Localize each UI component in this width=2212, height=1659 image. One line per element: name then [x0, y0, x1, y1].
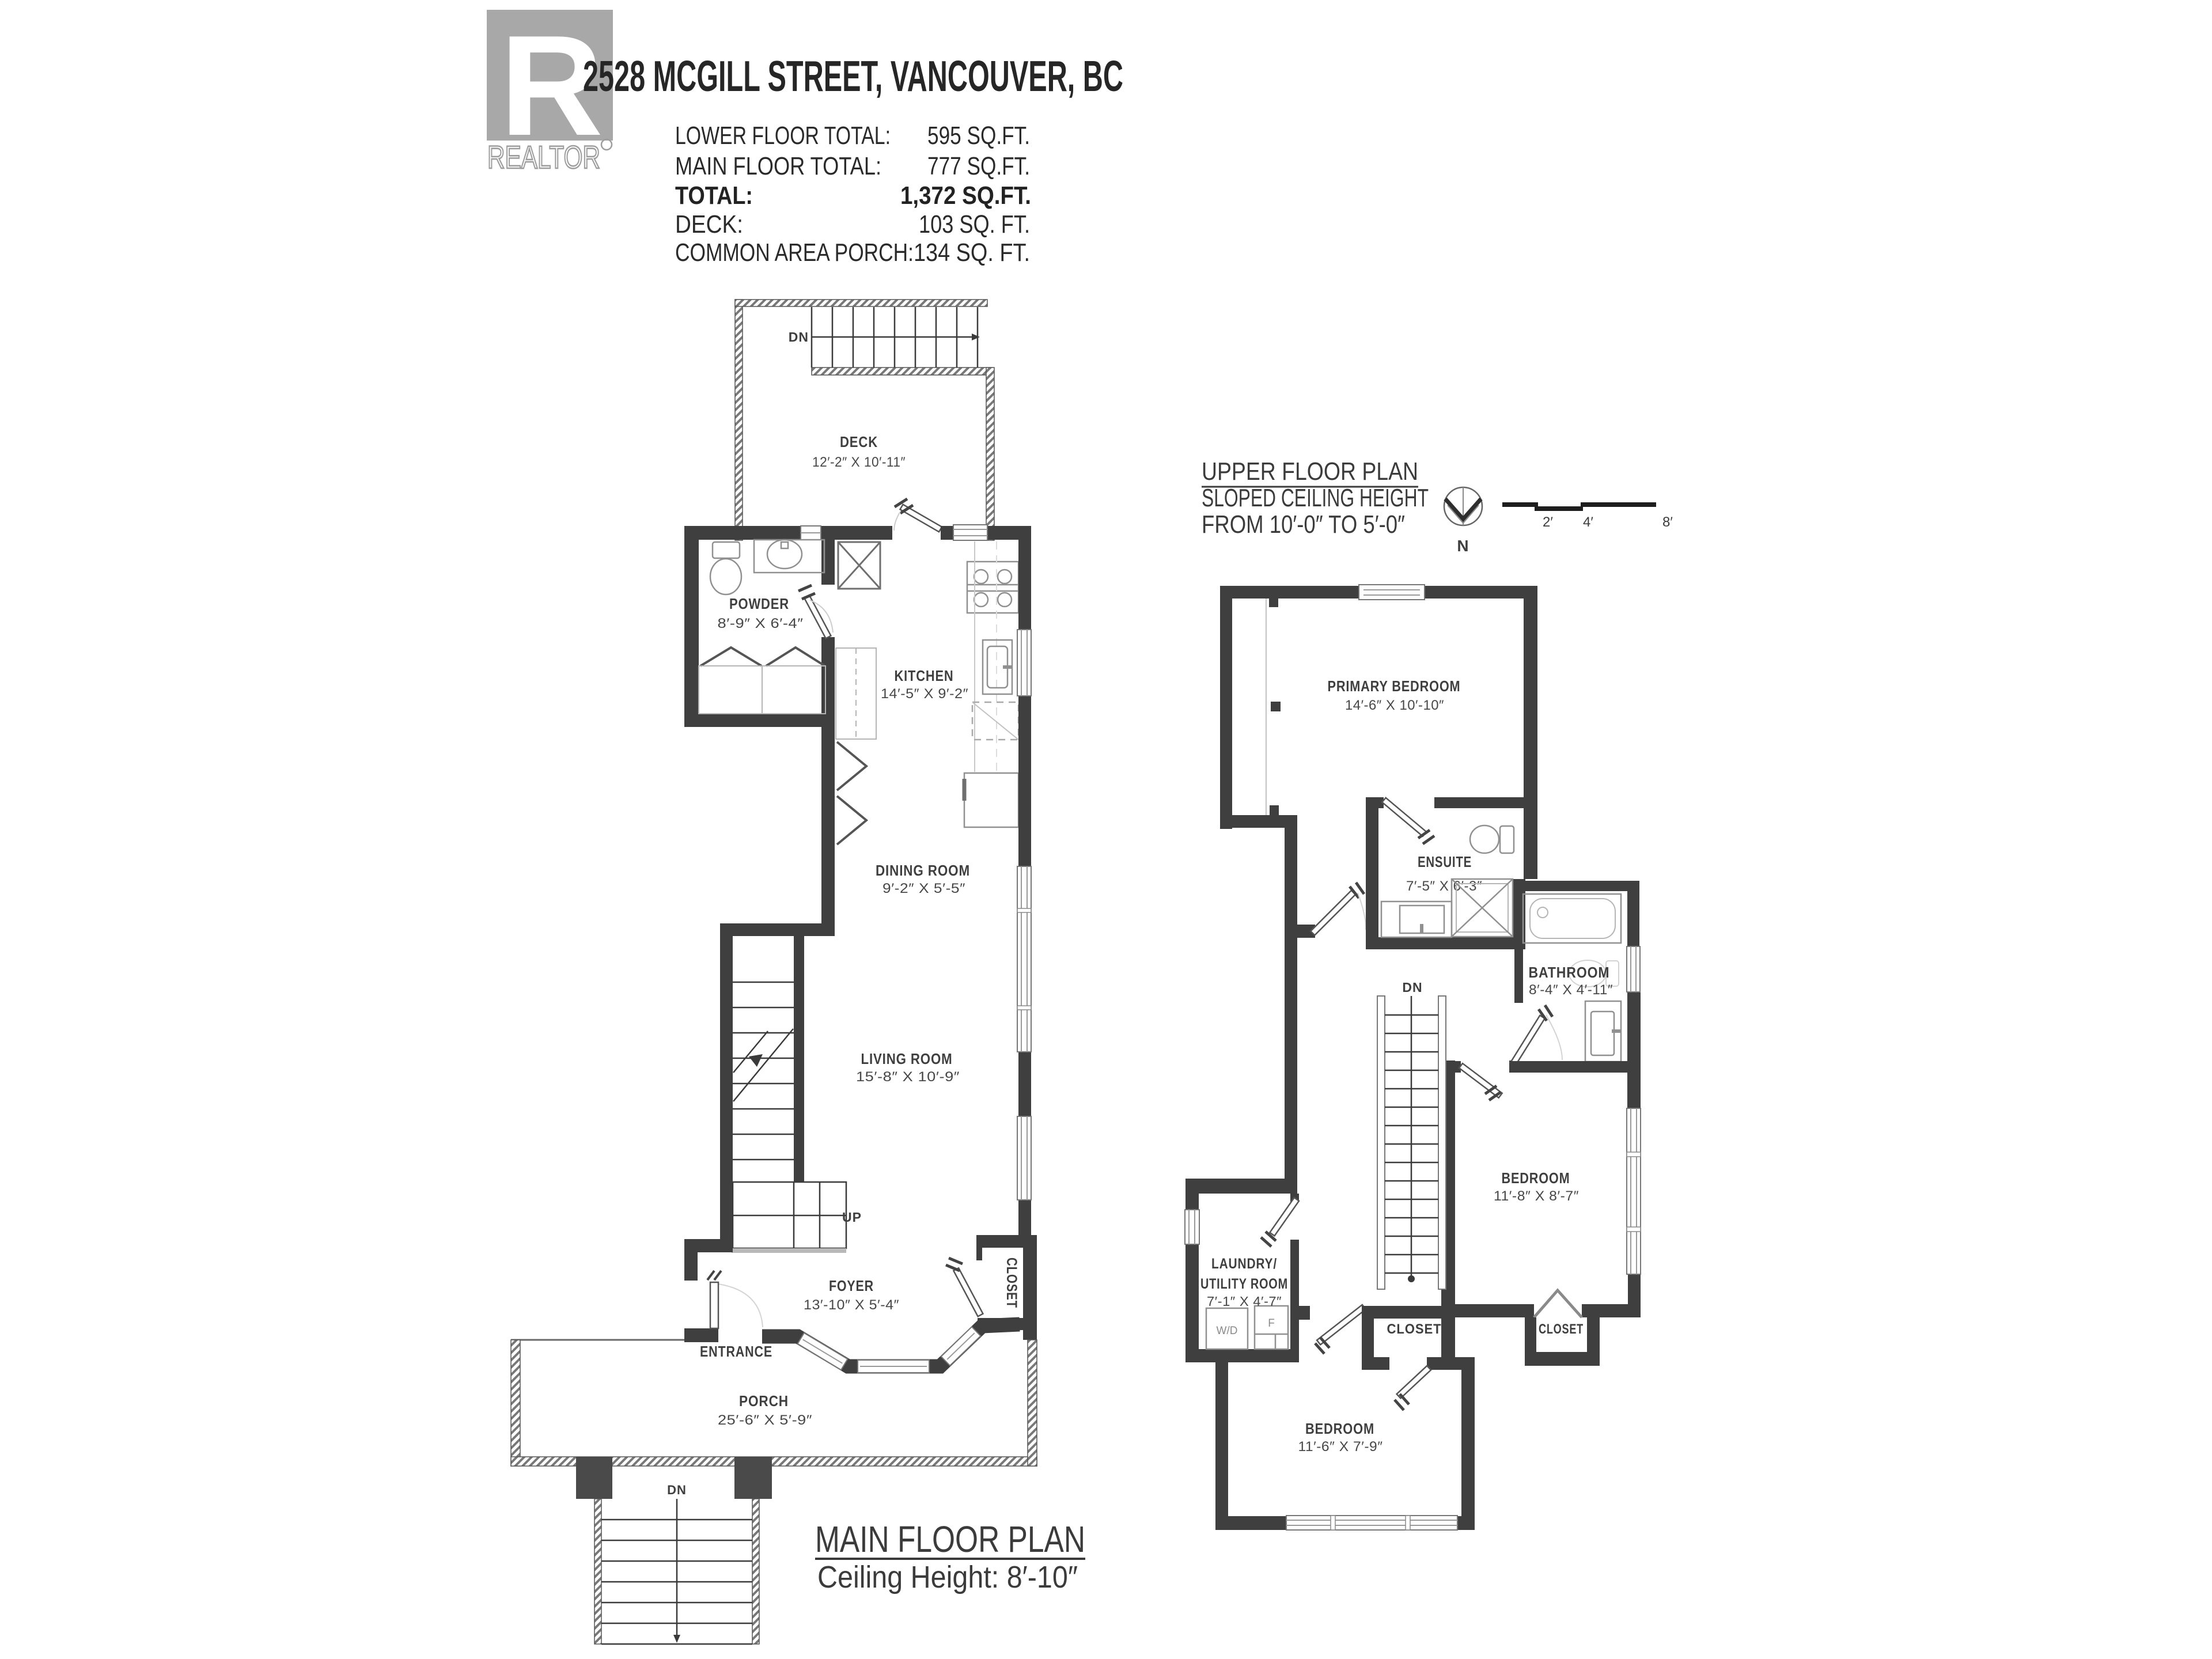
svg-text:11′-6″ X 7′-9″: 11′-6″ X 7′-9″	[1298, 1439, 1383, 1455]
svg-text:595 SQ.FT.: 595 SQ.FT.	[927, 122, 1030, 150]
svg-text:POWDER: POWDER	[729, 595, 789, 612]
svg-text:CLOSET: CLOSET	[1003, 1257, 1020, 1308]
svg-text:11′-8″ X 8′-7″: 11′-8″ X 8′-7″	[1494, 1188, 1579, 1204]
svg-text:2′: 2′	[1543, 514, 1553, 530]
svg-text:BEDROOM: BEDROOM	[1502, 1169, 1570, 1187]
svg-text:PRIMARY BEDROOM: PRIMARY BEDROOM	[1328, 677, 1461, 695]
svg-text:UPPER FLOOR PLAN: UPPER FLOOR PLAN	[1202, 457, 1418, 486]
svg-text:BATHROOM: BATHROOM	[1529, 964, 1610, 981]
svg-text:7′-5″ X 6′-3″: 7′-5″ X 6′-3″	[1406, 878, 1482, 894]
svg-text:CLOSET: CLOSET	[1387, 1321, 1442, 1337]
svg-text:FROM 10′-0″ TO 5′-0″: FROM 10′-0″ TO 5′-0″	[1202, 510, 1405, 539]
svg-text:DINING ROOM: DINING ROOM	[876, 862, 970, 879]
svg-text:8′-4″ X 4′-11″: 8′-4″ X 4′-11″	[1529, 982, 1613, 998]
svg-text:13′-10″ X 5′-4″: 13′-10″ X 5′-4″	[804, 1297, 899, 1313]
svg-text:15′-8″ X 10′-9″: 15′-8″ X 10′-9″	[856, 1069, 960, 1085]
svg-text:134 SQ. FT.: 134 SQ. FT.	[914, 238, 1030, 267]
svg-text:2528 MCGILL STREET, VANCOUVER,: 2528 MCGILL STREET, VANCOUVER, BC	[583, 52, 1123, 100]
svg-text:ENSUITE: ENSUITE	[1418, 853, 1472, 870]
svg-text:KITCHEN: KITCHEN	[895, 667, 954, 684]
svg-text:MAIN FLOOR PLAN: MAIN FLOOR PLAN	[815, 1518, 1085, 1560]
svg-text:12′-2″ X 10′-11″: 12′-2″ X 10′-11″	[812, 454, 906, 470]
svg-text:COMMON AREA PORCH:: COMMON AREA PORCH:	[675, 238, 914, 267]
svg-text:REALTOR: REALTOR	[487, 139, 600, 175]
svg-text:TOTAL:: TOTAL:	[675, 181, 753, 210]
svg-text:UTILITY ROOM: UTILITY ROOM	[1200, 1276, 1288, 1292]
svg-text:FOYER: FOYER	[829, 1277, 874, 1294]
svg-text:CLOSET: CLOSET	[1539, 1321, 1584, 1337]
svg-text:W/D: W/D	[1217, 1325, 1238, 1337]
svg-text:N: N	[1457, 537, 1469, 555]
svg-text:DN: DN	[1402, 980, 1422, 995]
svg-text:7′-1″ X 4′-7″: 7′-1″ X 4′-7″	[1207, 1294, 1282, 1309]
svg-text:103 SQ. FT.: 103 SQ. FT.	[919, 210, 1030, 238]
svg-text:ENTRANCE: ENTRANCE	[700, 1343, 772, 1360]
svg-text:DN: DN	[789, 329, 809, 344]
svg-text:14′-5″ X 9′-2″: 14′-5″ X 9′-2″	[881, 686, 968, 702]
svg-text:LOWER FLOOR TOTAL:: LOWER FLOOR TOTAL:	[675, 122, 891, 150]
svg-text:UP: UP	[842, 1210, 862, 1225]
svg-text:25′-6″ X 5′-9″: 25′-6″ X 5′-9″	[718, 1412, 812, 1428]
svg-text:4′: 4′	[1583, 514, 1593, 530]
svg-text:8′: 8′	[1662, 514, 1673, 530]
svg-text:777 SQ.FT.: 777 SQ.FT.	[927, 152, 1030, 180]
svg-text:F: F	[1268, 1317, 1275, 1330]
svg-text:LAUNDRY/: LAUNDRY/	[1211, 1256, 1277, 1272]
svg-text:1,372 SQ.FT.: 1,372 SQ.FT.	[900, 181, 1031, 210]
svg-text:LIVING ROOM: LIVING ROOM	[861, 1050, 953, 1067]
svg-text:DECK: DECK	[840, 433, 878, 450]
svg-text:BEDROOM: BEDROOM	[1305, 1420, 1374, 1437]
svg-text:9′-2″ X 5′-5″: 9′-2″ X 5′-5″	[882, 881, 965, 896]
svg-text:SLOPED CEILING HEIGHT: SLOPED CEILING HEIGHT	[1202, 484, 1429, 512]
svg-text:8′-9″ X 6′-4″: 8′-9″ X 6′-4″	[718, 616, 804, 631]
svg-text:DN: DN	[667, 1483, 687, 1497]
svg-text:DECK:: DECK:	[675, 210, 743, 238]
svg-text:14′-6″ X 10′-10″: 14′-6″ X 10′-10″	[1345, 698, 1444, 713]
svg-text:PORCH: PORCH	[739, 1392, 789, 1410]
svg-text:MAIN FLOOR TOTAL:: MAIN FLOOR TOTAL:	[675, 152, 881, 180]
svg-text:Ceiling Height: 8′-10″: Ceiling Height: 8′-10″	[817, 1560, 1078, 1594]
